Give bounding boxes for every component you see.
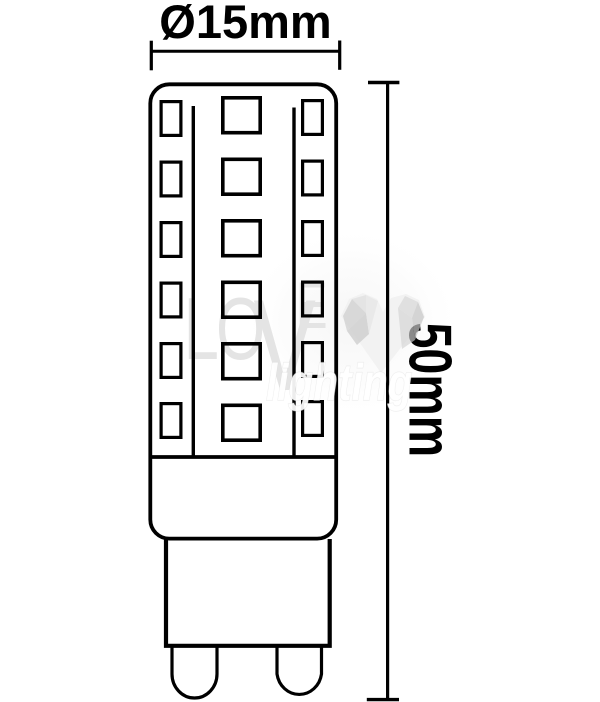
svg-text:Ø15mm: Ø15mm bbox=[159, 0, 331, 48]
svg-text:L: L bbox=[184, 281, 219, 379]
svg-text:lighting: lighting bbox=[266, 353, 412, 411]
